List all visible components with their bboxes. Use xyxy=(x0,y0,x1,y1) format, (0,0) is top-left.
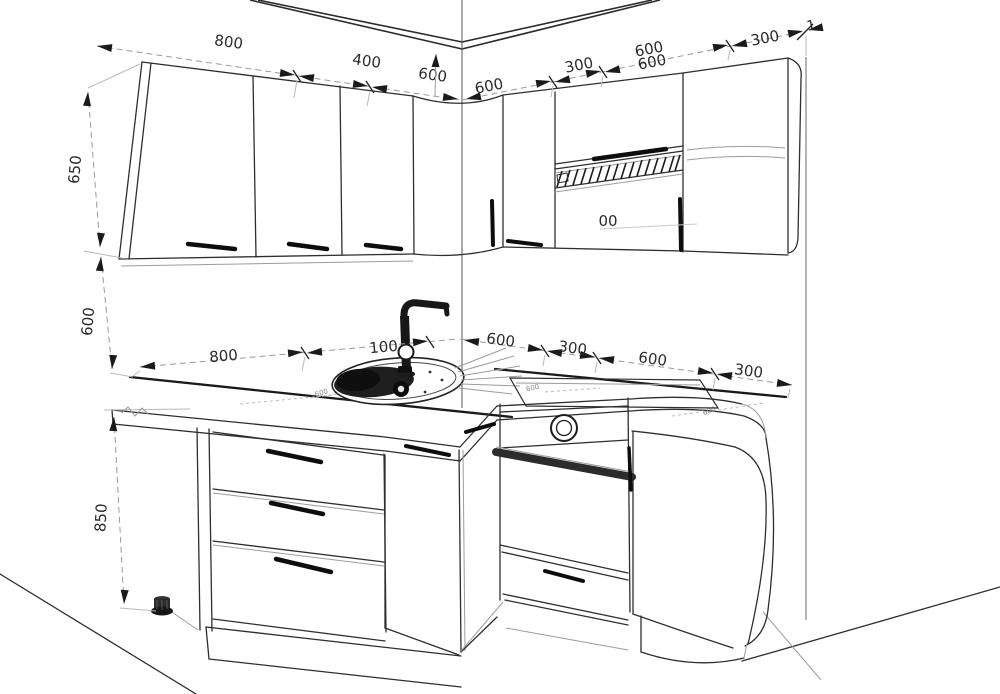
dim-label: 650 xyxy=(65,155,85,185)
end-door-handle-icon xyxy=(629,448,631,490)
counter-depth-mark: 600 xyxy=(702,405,717,417)
dim-label: 100 xyxy=(369,337,399,357)
dim-label: 600 xyxy=(78,307,98,337)
corner-base-handle-icon xyxy=(406,446,449,455)
dim-label: 600 xyxy=(473,75,505,98)
built-in-oven xyxy=(496,398,632,650)
room-walls xyxy=(250,0,806,620)
upper-door-handle-icon xyxy=(188,244,235,249)
extractor-hood-unit: 00 xyxy=(555,146,697,250)
oven-drawer-handle-icon xyxy=(545,571,583,581)
dim-label: 1 xyxy=(805,17,817,34)
upper-cabinets xyxy=(119,58,801,266)
dim-label: 800 xyxy=(213,31,244,53)
oven-handle-icon xyxy=(496,452,632,477)
drawing-canvas: 00 600 600 600 xyxy=(0,0,1000,694)
adjustable-foot xyxy=(151,596,173,616)
rounded-end-base-cabinet xyxy=(629,431,774,663)
upper-door-handle-icon xyxy=(366,245,401,249)
dim-label: 300 xyxy=(557,337,588,359)
drawer-handle-icon xyxy=(276,559,331,572)
dim-label: 600 xyxy=(485,329,516,351)
dim-label: 850 xyxy=(91,503,110,533)
oven-knob-icon xyxy=(551,415,577,441)
dim-label: 600 xyxy=(637,348,668,370)
dim-label: 300 xyxy=(749,27,781,50)
kitchen-sink xyxy=(331,348,522,409)
dim-label: 600 xyxy=(417,64,448,86)
base-cabinets xyxy=(166,424,503,687)
dimension-left-heights: 650 600 850 xyxy=(65,92,190,611)
counter-depth-mark: 600 xyxy=(525,383,540,394)
dim-label: 800 xyxy=(209,346,239,366)
hood-door-handle-icon xyxy=(594,149,666,159)
upper-door-handle-icon xyxy=(289,244,327,249)
dimension-counter-right: 600 300 600 300 xyxy=(460,329,793,398)
drawer-handle-icon xyxy=(271,503,323,514)
hood-partial-dimension-label: 00 xyxy=(598,212,617,230)
corner-door-handle-icon xyxy=(492,201,493,245)
drawer-handle-icon xyxy=(268,451,321,462)
upper-door-handle-icon xyxy=(508,241,541,245)
dim-label: 300 xyxy=(733,360,764,382)
dim-label: 400 xyxy=(351,50,382,72)
kitchen-elevation-drawing: 00 600 600 600 xyxy=(0,0,1000,694)
faucet-ball-joint xyxy=(399,345,414,360)
